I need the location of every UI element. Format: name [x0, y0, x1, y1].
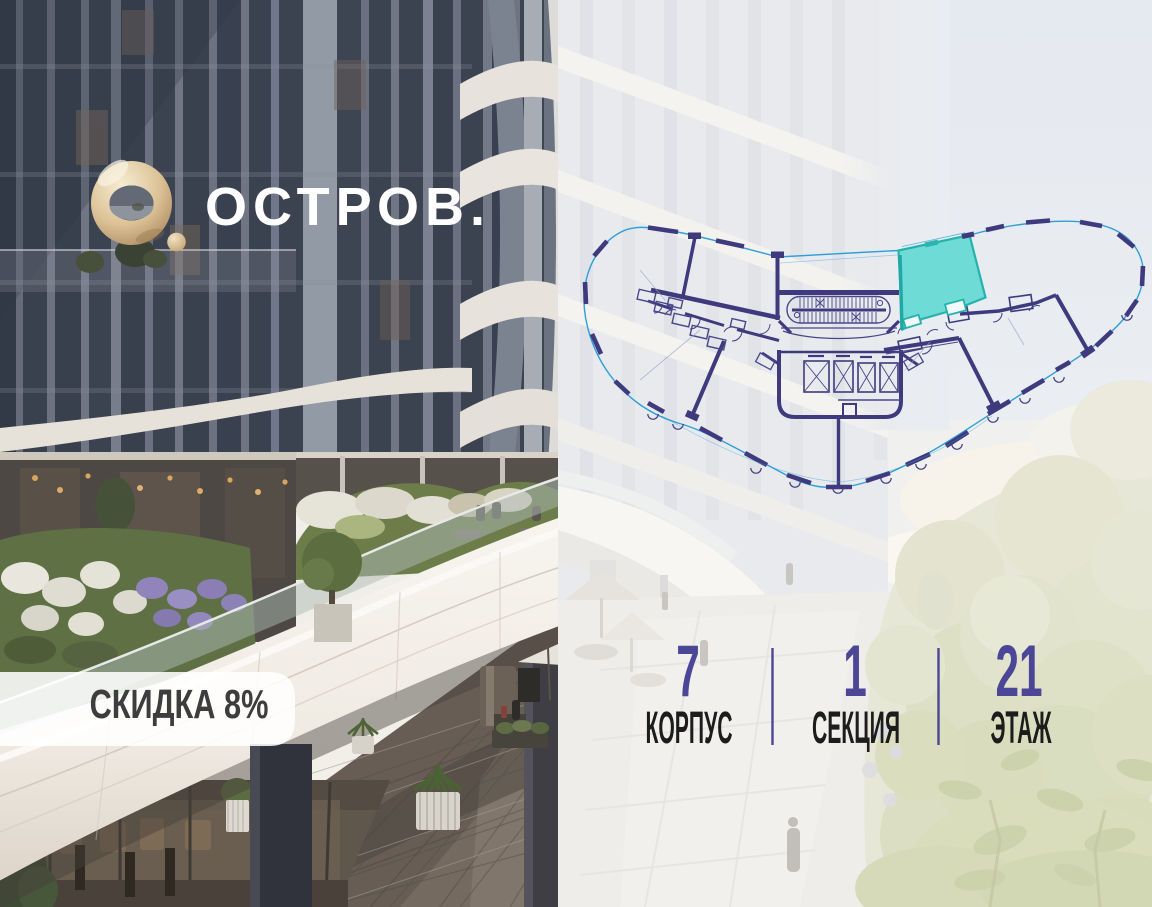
svg-text:21: 21 — [995, 630, 1042, 712]
svg-text:7: 7 — [676, 630, 700, 712]
svg-text:ОСТРОВ.: ОСТРОВ. — [205, 177, 491, 237]
svg-text:ЭТАЖ: ЭТАЖ — [991, 703, 1052, 753]
svg-text:КОРПУС: КОРПУС — [645, 703, 732, 753]
svg-text:СЕКЦИЯ: СЕКЦИЯ — [812, 703, 900, 753]
svg-text:СКИДКА 8%: СКИДКА 8% — [90, 681, 269, 727]
svg-text:1: 1 — [843, 630, 867, 712]
